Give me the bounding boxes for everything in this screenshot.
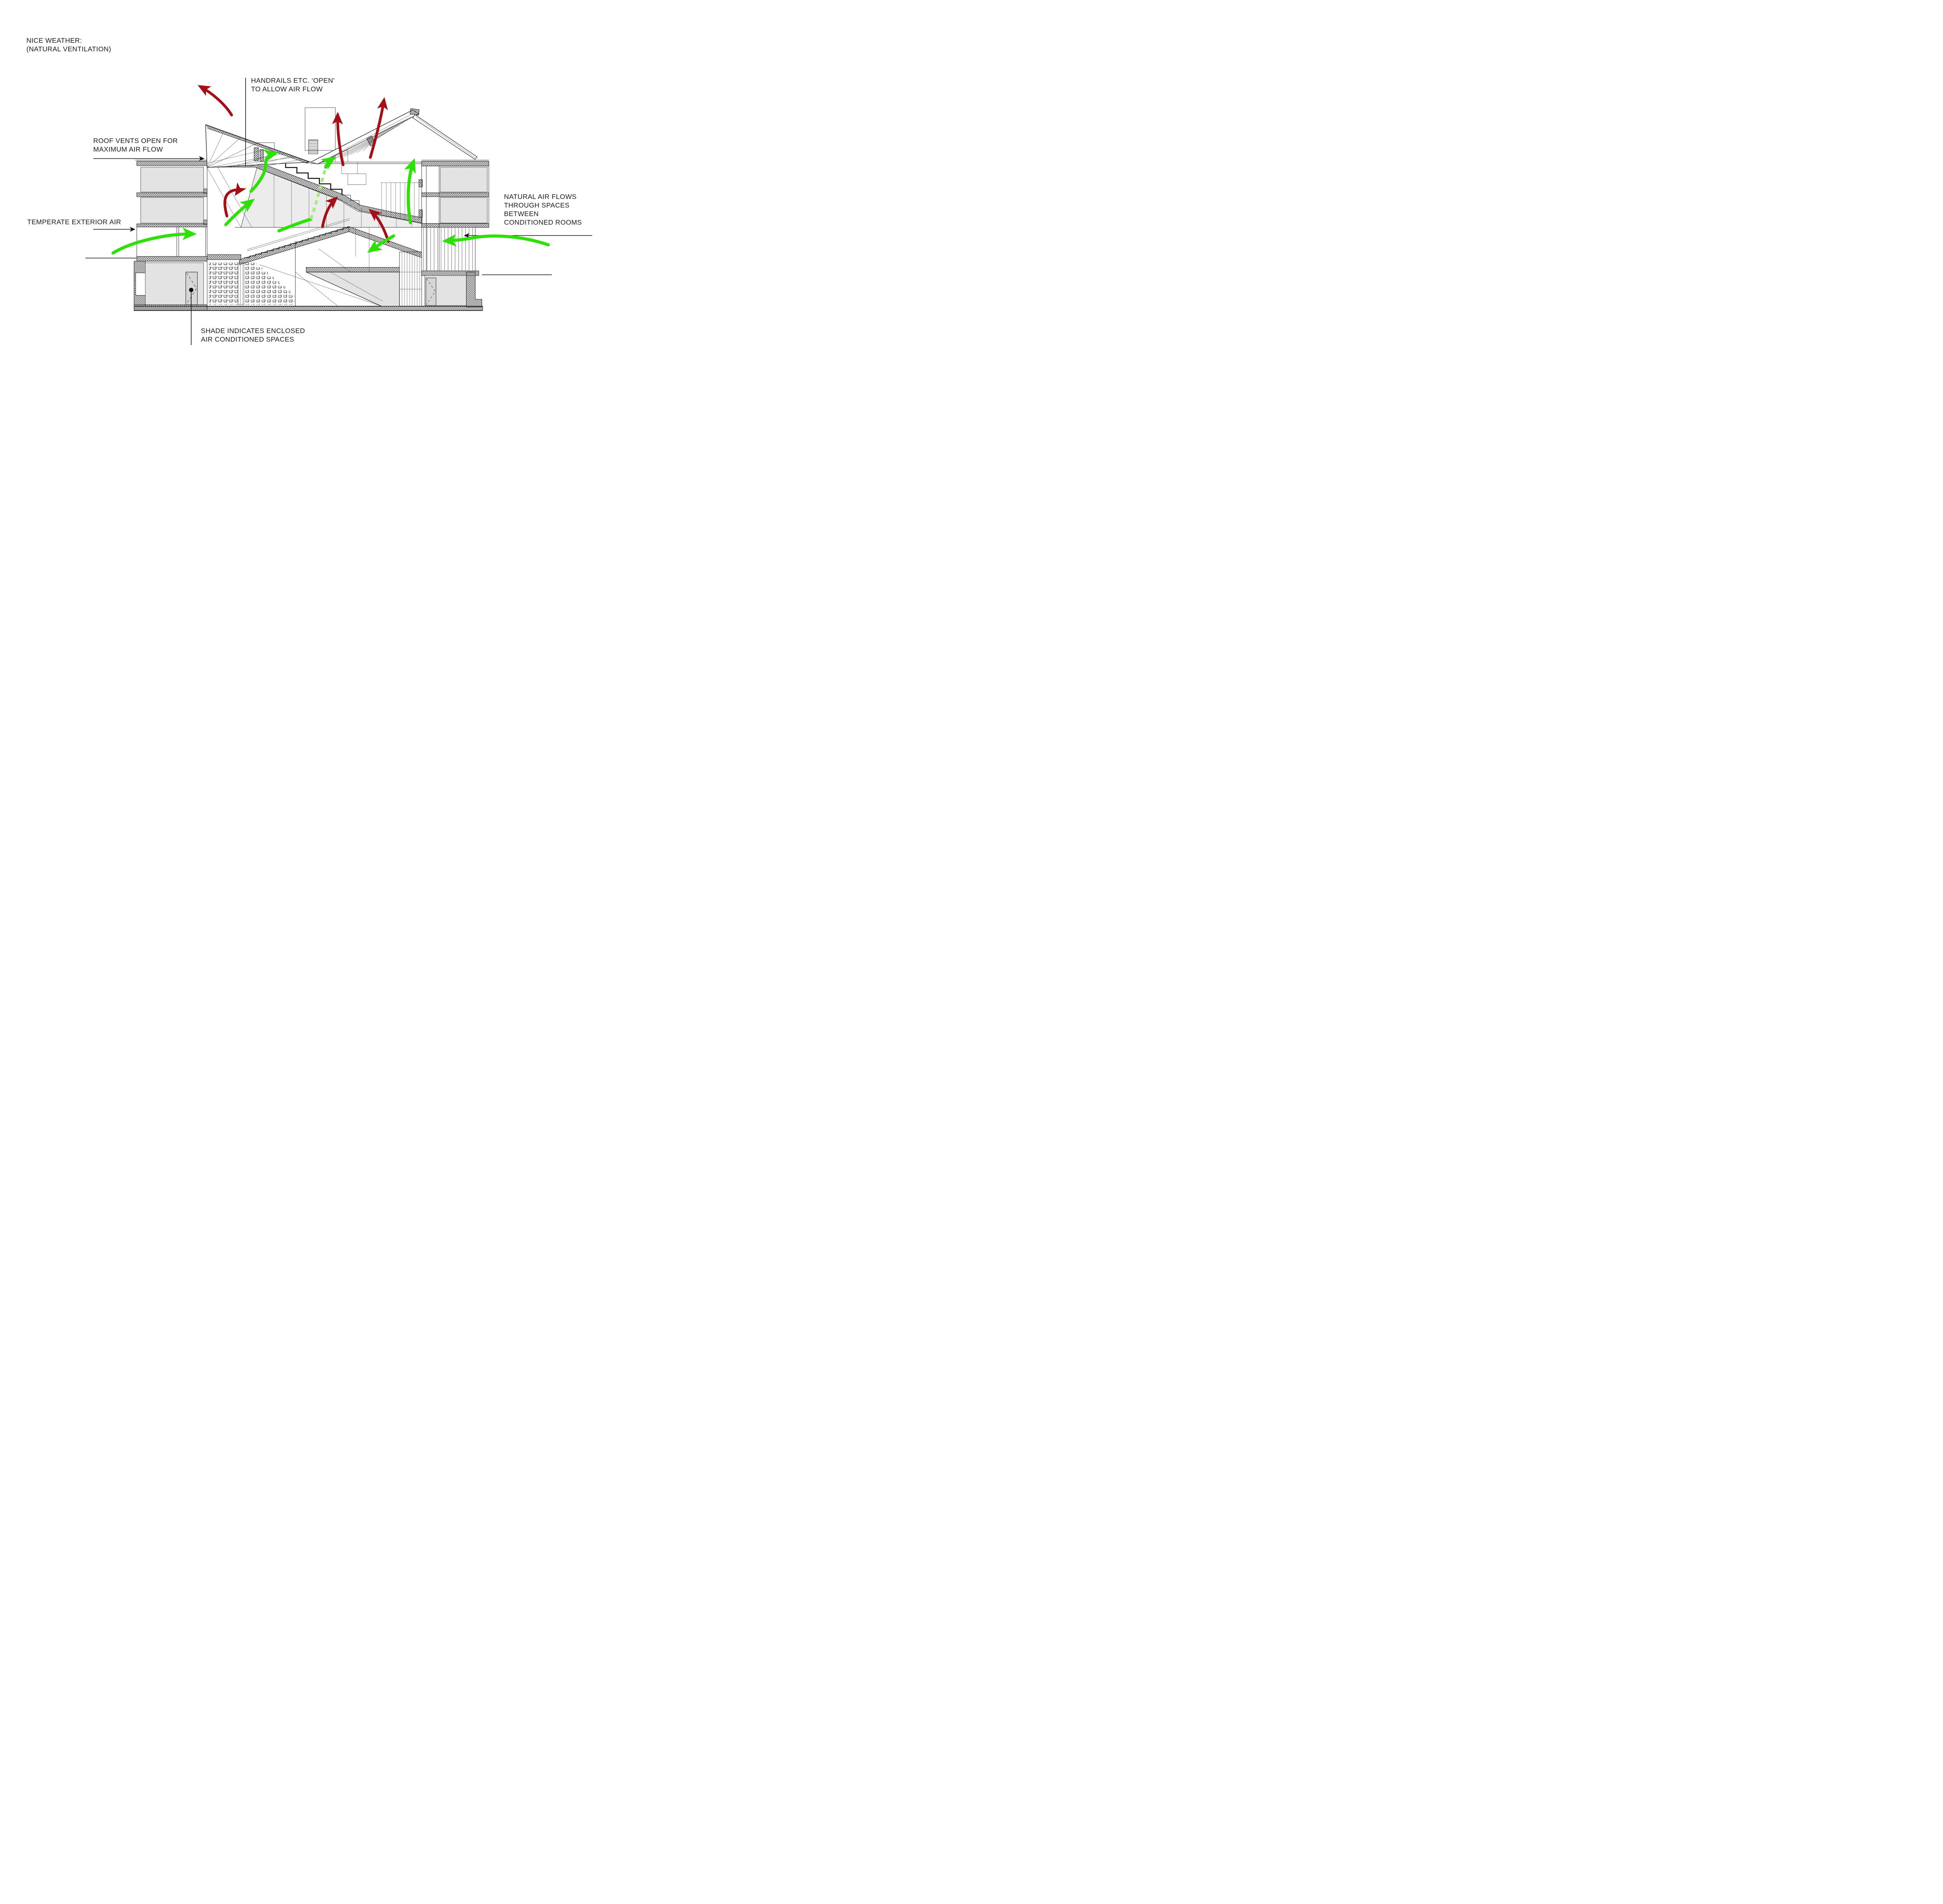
ventilation-screen <box>422 227 475 271</box>
shade-line-1: SHADE INDICATES ENCLOSED <box>201 326 305 335</box>
enclosed-space-wedge <box>306 272 399 306</box>
annotation-handrails: HANDRAILS ETC. ‘OPEN’ TO ALLOW AIR FLOW <box>251 76 335 93</box>
right-roof-monitor <box>311 108 477 164</box>
annotation-roof-vents: ROOF VENTS OPEN FOR MAXIMUM AIR FLOW <box>93 136 178 154</box>
right-annex-building <box>419 160 489 307</box>
annotation-shade: SHADE INDICATES ENCLOSED AIR CONDITIONED… <box>201 326 305 344</box>
exhaust-air-arrow-1 <box>201 87 232 115</box>
fresh-air-arrow-1 <box>113 234 193 253</box>
temperate-air-line-1: TEMPERATE EXTERIOR AIR <box>27 218 121 226</box>
diagram-title: NICE WEATHER: (NATURAL VENTILATION) <box>26 36 111 53</box>
shade-leader-dot <box>189 288 194 292</box>
natural-flow-line-2: THROUGH SPACES <box>504 201 582 209</box>
natural-flow-line-4: CONDITIONED ROOMS <box>504 218 582 227</box>
left-roof-monitor <box>206 125 310 168</box>
natural-flow-line-1: NATURAL AIR FLOWS <box>504 192 582 201</box>
roof-vents-line-1: ROOF VENTS OPEN FOR <box>93 136 178 145</box>
exhaust-air-arrow-4 <box>338 115 343 165</box>
tiered-seating <box>209 263 295 305</box>
ventilation-section-diagram: NICE WEATHER: (NATURAL VENTILATION) HAND… <box>0 0 605 370</box>
left-annex-exterior-wall <box>134 261 145 306</box>
section-drawing <box>0 0 605 370</box>
handrails-line-1: HANDRAILS ETC. ‘OPEN’ <box>251 76 335 85</box>
exhaust-air-arrow-2 <box>225 190 237 216</box>
natural-flow-line-3: BETWEEN <box>504 209 582 218</box>
shade-line-2: AIR CONDITIONED SPACES <box>201 335 305 344</box>
annotation-natural-flow: NATURAL AIR FLOWS THROUGH SPACES BETWEEN… <box>504 192 582 227</box>
roof-vents-line-2: MAXIMUM AIR FLOW <box>93 145 178 154</box>
title-line-1: NICE WEATHER: <box>26 36 111 45</box>
right-annex-door <box>426 278 436 305</box>
valley-louver-stack <box>309 140 318 154</box>
title-line-2: (NATURAL VENTILATION) <box>26 45 111 53</box>
annotation-temperate-air: TEMPERATE EXTERIOR AIR <box>27 218 121 226</box>
handrails-line-2: TO ALLOW AIR FLOW <box>251 85 335 93</box>
fresh-air-arrow-5 <box>408 162 413 223</box>
